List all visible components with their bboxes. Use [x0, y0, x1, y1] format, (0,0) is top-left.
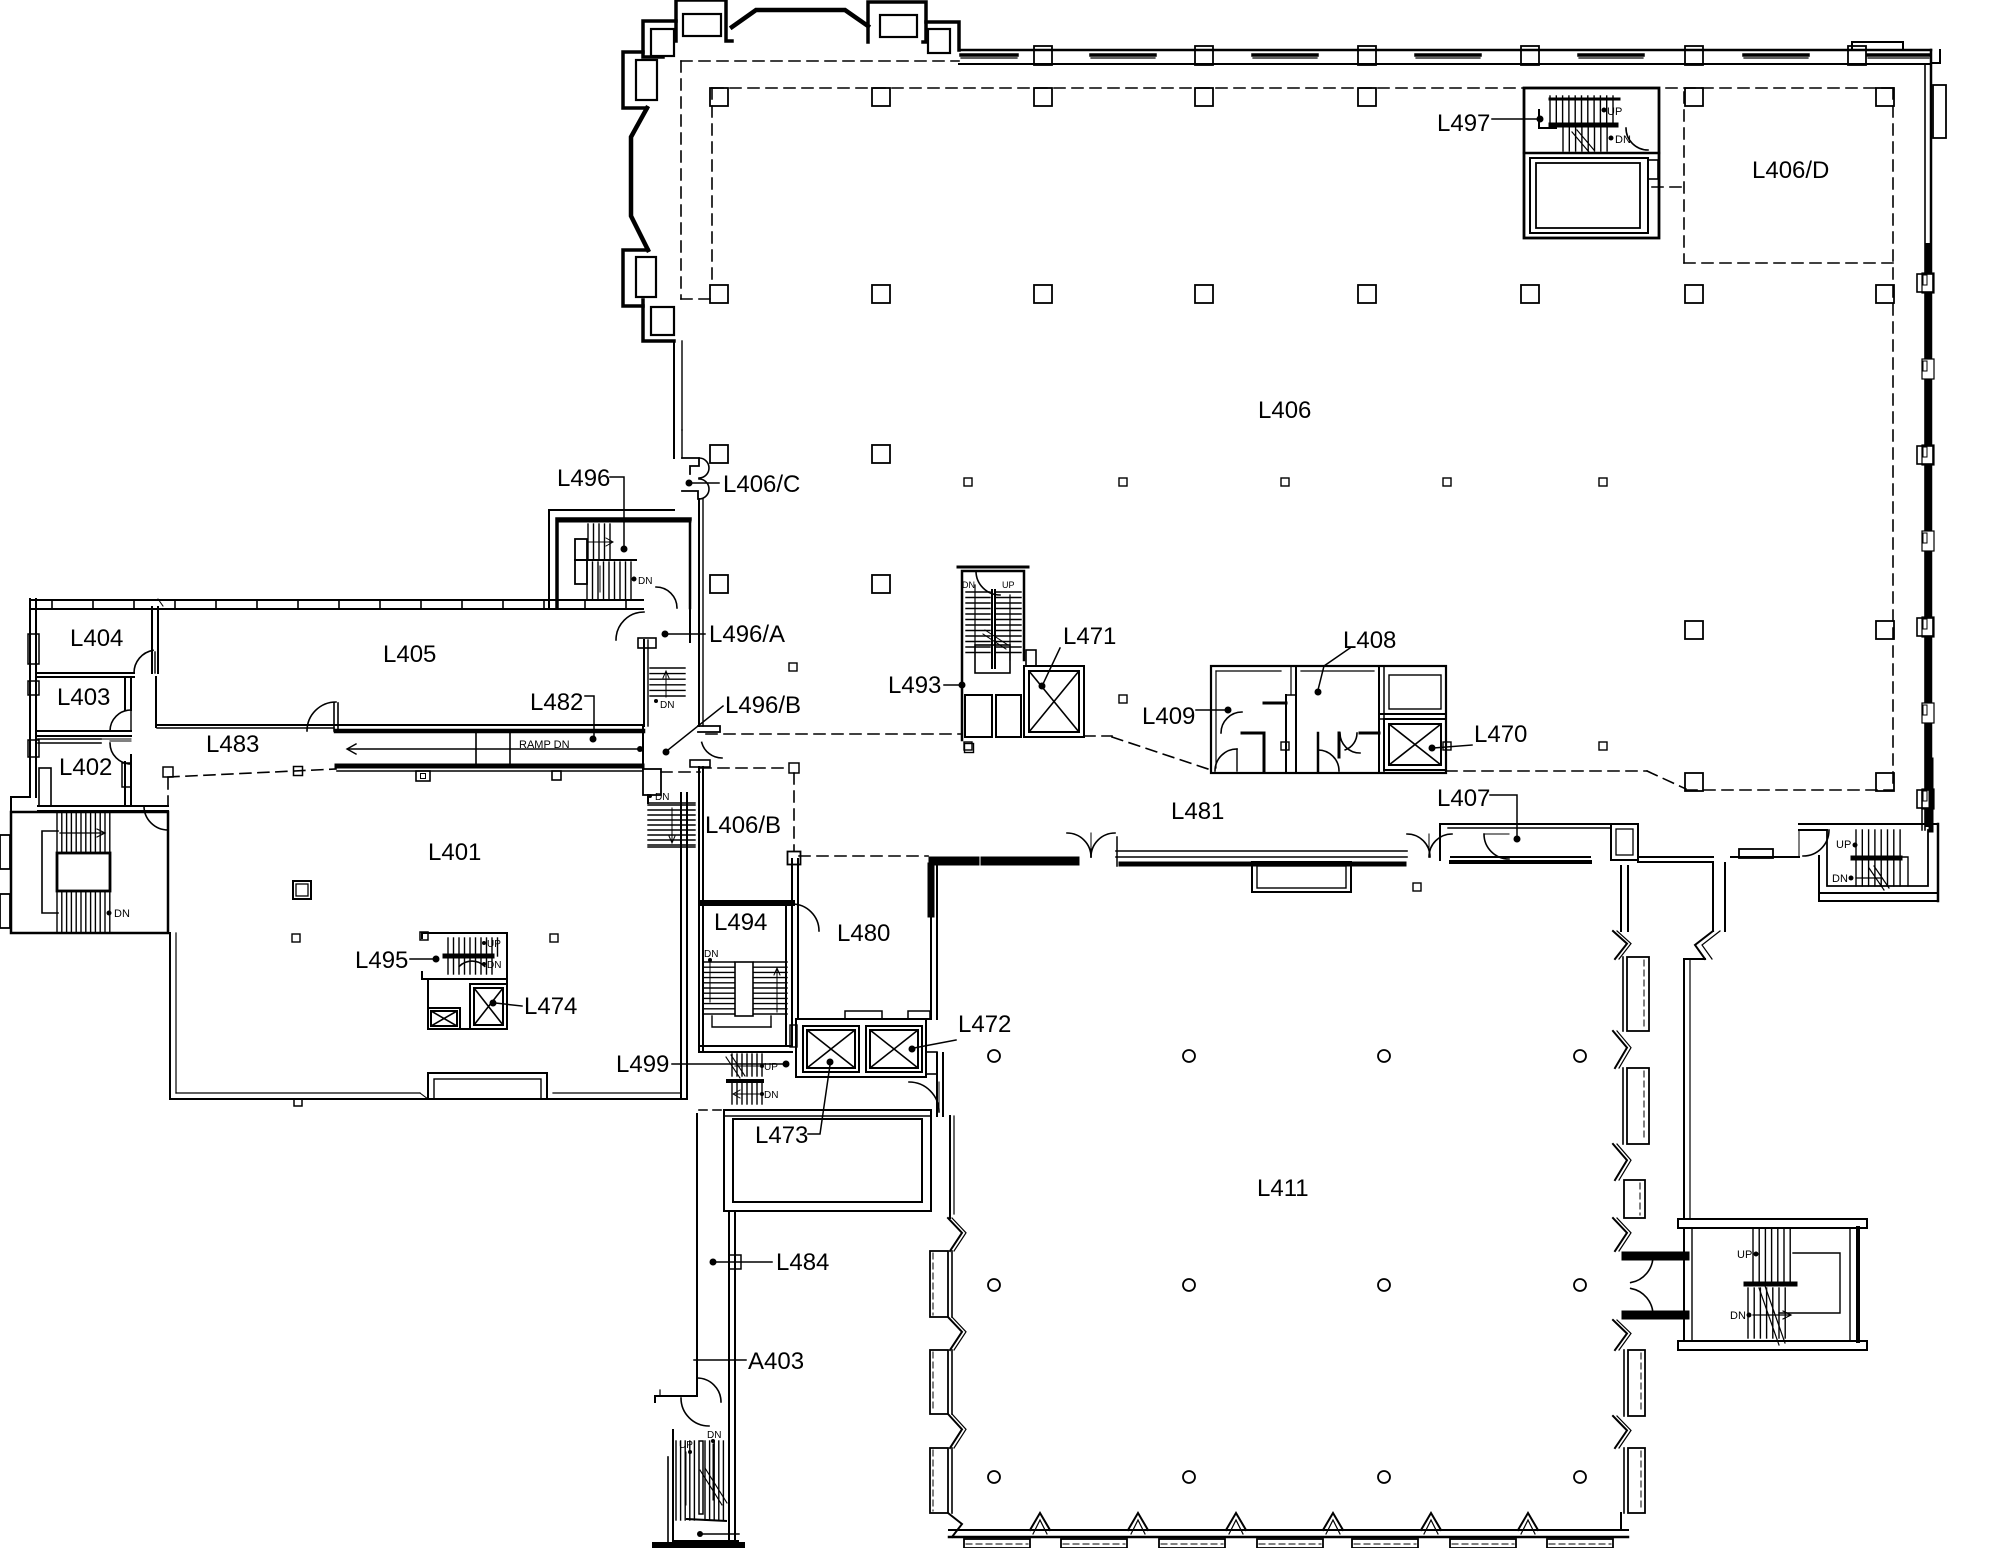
svg-text:L403: L403 [57, 684, 110, 711]
svg-text:L499: L499 [616, 1051, 669, 1078]
svg-text:L473: L473 [755, 1122, 808, 1149]
svg-text:DN: DN [707, 1430, 721, 1441]
svg-text:L497: L497 [1437, 110, 1490, 137]
svg-text:L470: L470 [1474, 721, 1527, 748]
svg-text:UP: UP [487, 939, 501, 950]
svg-text:DN: DN [660, 700, 674, 711]
svg-text:DN: DN [764, 1090, 778, 1101]
svg-text:L494: L494 [714, 909, 767, 936]
svg-text:DN: DN [1615, 134, 1631, 146]
svg-text:L406: L406 [1258, 397, 1311, 424]
svg-text:DN: DN [1730, 1310, 1746, 1322]
svg-text:DN: DN [638, 576, 652, 587]
svg-text:L404: L404 [70, 625, 123, 652]
svg-text:L409: L409 [1142, 703, 1195, 730]
svg-text:UP: UP [1002, 580, 1015, 590]
svg-text:DN: DN [962, 580, 975, 590]
svg-text:L474: L474 [524, 993, 577, 1020]
svg-text:L496/A: L496/A [709, 621, 785, 648]
svg-text:DN: DN [655, 792, 669, 803]
svg-text:L402: L402 [59, 754, 112, 781]
svg-text:L472: L472 [958, 1011, 1011, 1038]
svg-text:UP: UP [1607, 106, 1622, 118]
svg-text:L496/B: L496/B [725, 692, 801, 719]
svg-text:UP: UP [1737, 1249, 1752, 1261]
svg-text:L411: L411 [1257, 1175, 1309, 1202]
svg-text:L401: L401 [428, 839, 481, 866]
svg-text:DN: DN [704, 949, 718, 960]
svg-text:UP: UP [1836, 839, 1851, 851]
svg-text:L480: L480 [837, 920, 890, 947]
svg-text:L482: L482 [530, 689, 583, 716]
svg-text:DN: DN [1832, 873, 1848, 885]
svg-text:L481: L481 [1171, 798, 1224, 825]
svg-text:L406/C: L406/C [723, 471, 800, 498]
svg-text:L406/B: L406/B [705, 812, 781, 839]
svg-text:L407: L407 [1437, 785, 1490, 812]
svg-text:L484: L484 [776, 1249, 829, 1276]
svg-text:L471: L471 [1063, 623, 1116, 650]
svg-text:UP: UP [679, 1440, 693, 1451]
svg-text:A403: A403 [748, 1348, 804, 1375]
svg-text:L406/D: L406/D [1752, 157, 1829, 184]
svg-text:RAMP DN: RAMP DN [519, 739, 570, 751]
svg-text:L483: L483 [206, 731, 259, 758]
svg-text:DN: DN [487, 960, 501, 971]
svg-text:L408: L408 [1343, 627, 1396, 654]
svg-text:L493: L493 [888, 672, 941, 699]
svg-text:L496: L496 [557, 465, 610, 492]
svg-text:L495: L495 [355, 947, 408, 974]
svg-text:DN: DN [114, 908, 130, 920]
svg-text:L405: L405 [383, 641, 436, 668]
